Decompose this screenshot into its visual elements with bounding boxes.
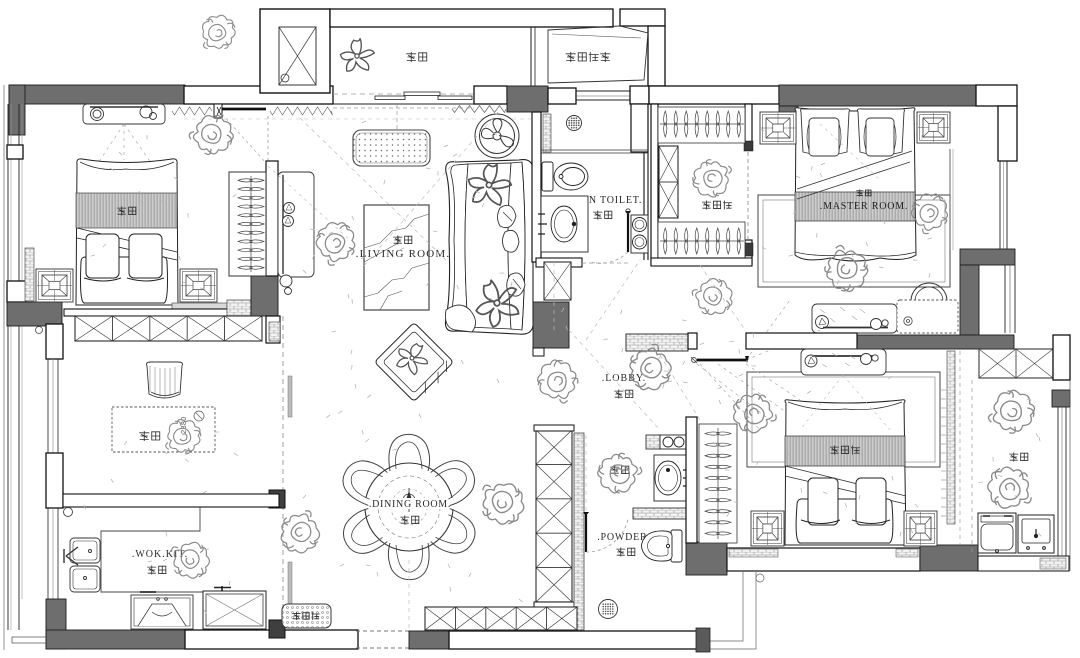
svg-text:.MASTER ROOM.: .MASTER ROOM. bbox=[820, 201, 908, 212]
svg-text:.DINING ROOM.: .DINING ROOM. bbox=[369, 499, 451, 510]
svg-text:.LIVING ROOM.: .LIVING ROOM. bbox=[356, 248, 451, 260]
svg-text:2380: 2380 bbox=[181, 416, 188, 434]
svg-text:.LOBBY.: .LOBBY. bbox=[602, 373, 647, 384]
